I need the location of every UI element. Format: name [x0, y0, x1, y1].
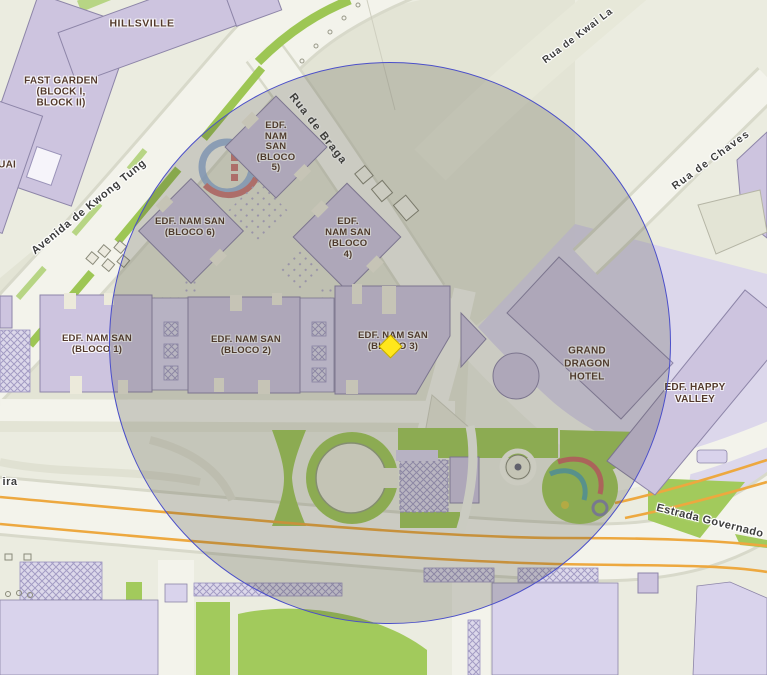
map-basemap — [0, 0, 767, 675]
building-nam-san-bloco-2 — [188, 293, 300, 394]
building-nam-san-bloco-1 — [40, 293, 152, 394]
map-canvas[interactable]: HILLSVILLE FAST GARDEN (BLOCK I, BLOCK I… — [0, 0, 767, 675]
building-bottom-left — [0, 600, 158, 675]
building-bottom-right — [693, 582, 767, 675]
building-bottom-center — [492, 583, 618, 675]
